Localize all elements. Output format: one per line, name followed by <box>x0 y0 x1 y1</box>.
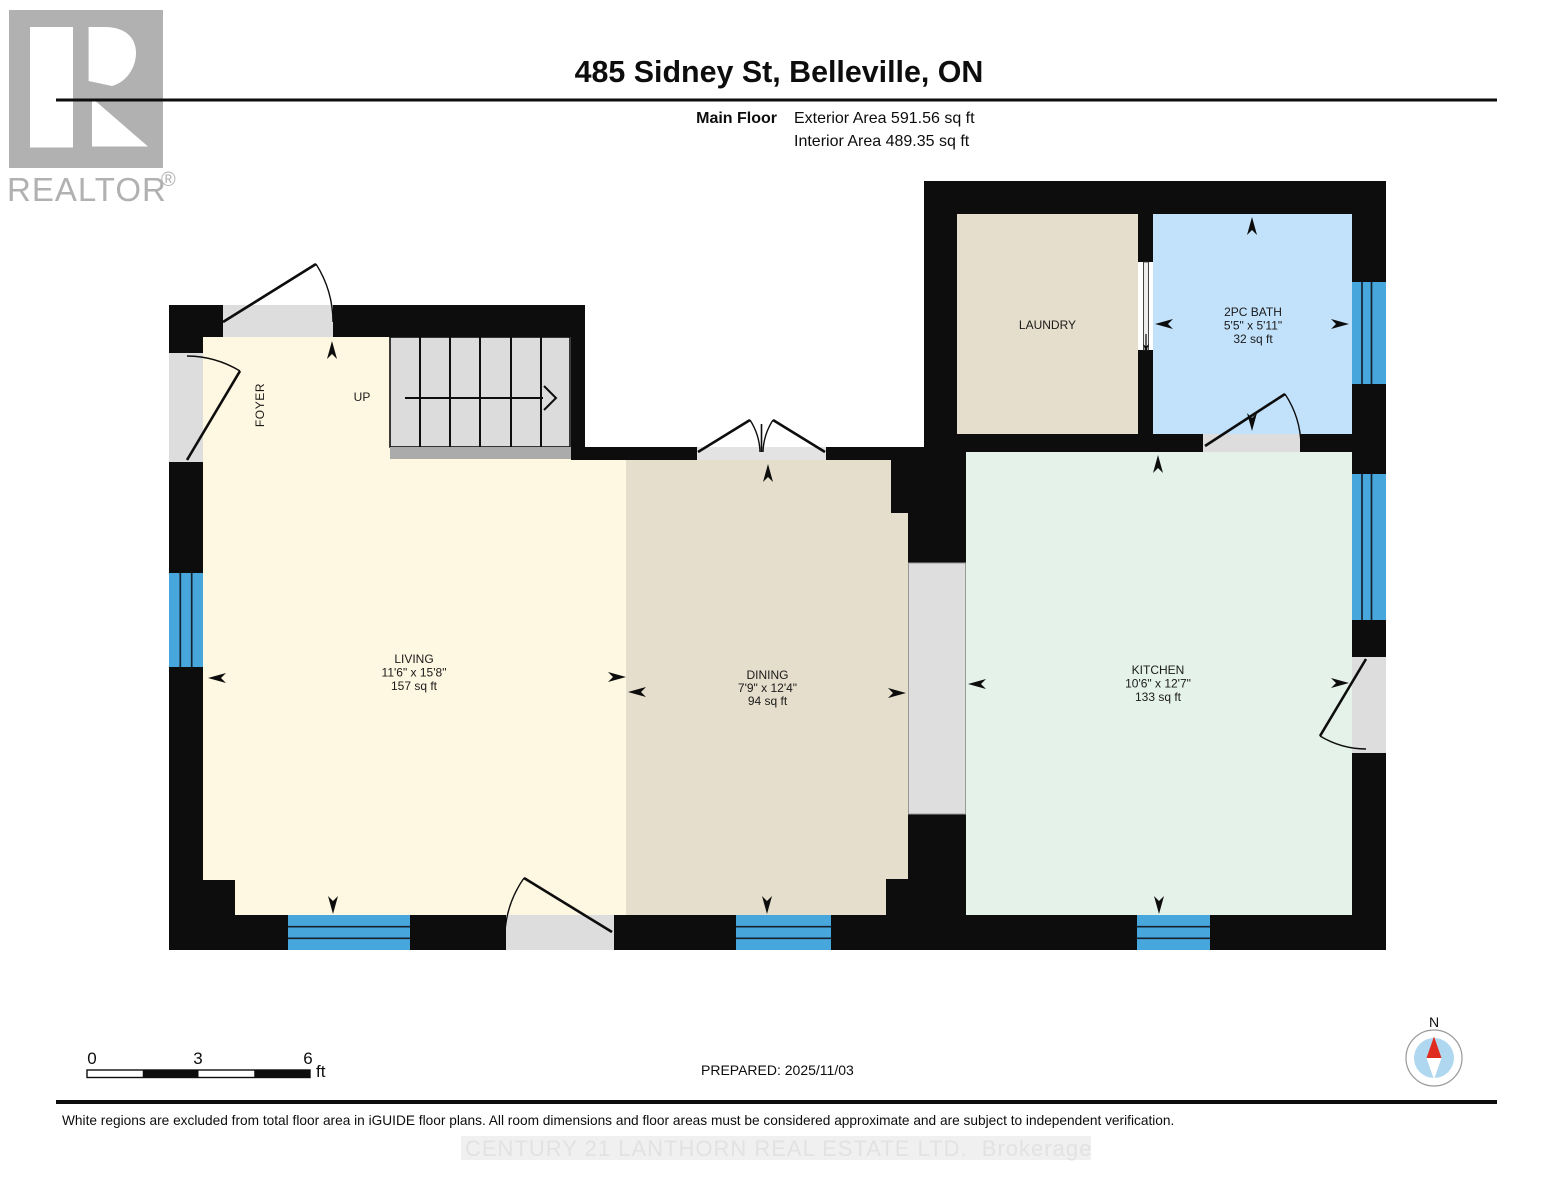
svg-text:LIVING: LIVING <box>394 652 433 666</box>
svg-text:157 sq ft: 157 sq ft <box>391 679 438 693</box>
svg-text:CENTURY 21 LANTHORN REAL ESTAT: CENTURY 21 LANTHORN REAL ESTATE LTD. Bro… <box>465 1136 1092 1161</box>
svg-text:485 Sidney St, Belleville, ON: 485 Sidney St, Belleville, ON <box>575 55 984 89</box>
svg-text:REALTOR: REALTOR <box>7 171 167 208</box>
svg-text:Interior Area 489.35 sq ft: Interior Area 489.35 sq ft <box>794 133 970 150</box>
svg-text:5'5" x 5'11": 5'5" x 5'11" <box>1224 319 1282 333</box>
svg-text:N: N <box>1429 1014 1439 1030</box>
svg-text:11'6" x 15'8": 11'6" x 15'8" <box>382 666 447 680</box>
svg-text:UP: UP <box>354 390 371 404</box>
svg-text:LAUNDRY: LAUNDRY <box>1019 318 1076 332</box>
svg-text:DINING: DINING <box>747 668 789 682</box>
svg-text:FOYER: FOYER <box>253 383 267 427</box>
svg-text:PREPARED: 2025/11/03: PREPARED: 2025/11/03 <box>701 1062 854 1078</box>
svg-text:32 sq ft: 32 sq ft <box>1233 332 1273 346</box>
svg-text:3: 3 <box>193 1049 202 1068</box>
svg-text:6: 6 <box>303 1049 312 1068</box>
svg-text:133 sq ft: 133 sq ft <box>1135 690 1182 704</box>
svg-text:0: 0 <box>87 1049 96 1068</box>
svg-text:KITCHEN: KITCHEN <box>1132 663 1185 677</box>
svg-text:Exterior Area 591.56 sq ft: Exterior Area 591.56 sq ft <box>794 110 975 127</box>
svg-text:ft: ft <box>316 1062 326 1081</box>
svg-text:10'6" x 12'7": 10'6" x 12'7" <box>1125 677 1191 691</box>
svg-text:Main Floor: Main Floor <box>696 110 777 127</box>
svg-text:7'9" x 12'4": 7'9" x 12'4" <box>738 681 797 695</box>
svg-text:2PC BATH: 2PC BATH <box>1224 305 1282 319</box>
svg-text:®: ® <box>161 169 176 191</box>
svg-text:White regions are excluded fro: White regions are excluded from total fl… <box>62 1113 1174 1128</box>
svg-text:94 sq ft: 94 sq ft <box>748 694 788 708</box>
